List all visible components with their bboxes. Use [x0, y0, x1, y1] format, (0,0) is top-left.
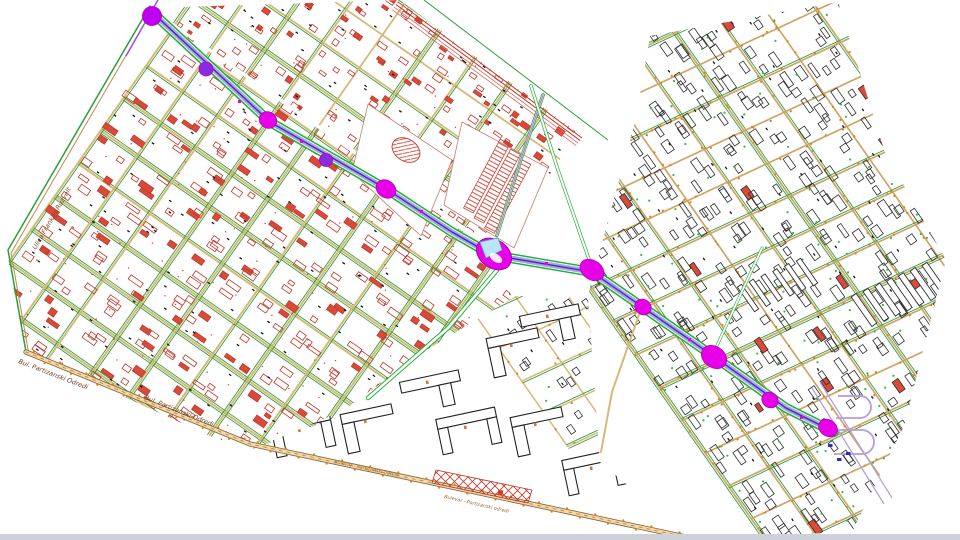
red-speck: [324, 362, 325, 363]
black-dash: [707, 420, 710, 423]
street-dot: [600, 111, 602, 113]
street-dot: [903, 206, 905, 208]
black-dash: [462, 516, 465, 519]
building: [203, 454, 212, 463]
red-speck: [308, 461, 309, 462]
building: [176, 270, 186, 279]
red-speck: [625, 432, 626, 433]
black-dash: [511, 351, 514, 354]
black-dash: [451, 407, 454, 410]
red-speck: [307, 448, 308, 449]
red-speck: [552, 194, 553, 195]
building: [544, 463, 556, 474]
black-dash: [164, 285, 167, 288]
building: [470, 326, 482, 337]
building: [538, 271, 550, 282]
street-dot: [669, 164, 671, 166]
red-speck: [263, 304, 264, 305]
building: [771, 449, 783, 460]
building: [95, 389, 103, 397]
building: [834, 307, 842, 315]
building: [483, 24, 491, 32]
red-speck: [241, 496, 242, 497]
street-dot: [621, 334, 623, 336]
red-speck: [124, 458, 125, 459]
building: [539, 444, 545, 450]
black-dash: [560, 475, 563, 478]
black-dash: [737, 445, 740, 448]
building: [376, 293, 389, 305]
building: [448, 211, 455, 218]
building: [763, 412, 777, 424]
black-dash: [10, 287, 13, 290]
street-dot: [890, 191, 892, 193]
black-dash: [479, 294, 482, 297]
black-dash: [94, 207, 97, 210]
building: [225, 108, 234, 117]
street-dot: [747, 431, 749, 433]
street-dot: [711, 387, 713, 389]
black-dash: [827, 356, 830, 359]
building: [263, 476, 272, 485]
building: [40, 397, 49, 405]
red-speck: [170, 367, 171, 368]
black-dash: [740, 268, 743, 271]
building: [942, 289, 953, 299]
building: [654, 456, 665, 466]
black-dash: [43, 326, 46, 329]
black-dash: [602, 363, 605, 366]
street-dot: [731, 416, 733, 418]
building: [600, 177, 612, 188]
black-dash: [118, 482, 121, 485]
street-dot: [689, 430, 691, 432]
black-dash: [138, 411, 141, 414]
black-dash: [42, 266, 45, 269]
red-speck: [266, 485, 267, 486]
red-speck: [378, 492, 379, 493]
street-dot: [931, 398, 933, 400]
red-speck: [307, 339, 308, 340]
black-dash: [887, 362, 890, 365]
building: [180, 221, 190, 229]
building: [471, 22, 480, 30]
building: [381, 443, 393, 454]
building: [807, 366, 814, 373]
black-dash: [472, 443, 475, 446]
black-dash: [683, 464, 686, 467]
red-speck: [175, 304, 176, 305]
building: [585, 337, 598, 348]
building: [408, 416, 419, 426]
building: [347, 192, 356, 200]
street-dot: [599, 75, 601, 77]
building: [587, 104, 593, 110]
black-dash: [185, 330, 188, 333]
red-speck: [290, 110, 291, 111]
red-speck: [490, 397, 491, 398]
building: [180, 421, 189, 429]
black-dash: [169, 200, 172, 203]
black-dash: [615, 179, 618, 182]
black-dash: [128, 337, 131, 340]
black-dash: [631, 288, 634, 291]
building: [309, 427, 316, 433]
building: [300, 187, 310, 196]
building: [464, 339, 472, 346]
building: [481, 449, 490, 458]
building: [29, 282, 39, 290]
street-dot: [767, 465, 769, 467]
building: [503, 290, 515, 300]
street-dot: [729, 51, 731, 53]
building: [257, 303, 268, 313]
red-speck: [287, 351, 288, 352]
street-dot: [662, 210, 664, 212]
building: [839, 381, 846, 388]
building: [833, 355, 848, 368]
street-dot: [637, 54, 639, 56]
street-line: [682, 216, 960, 421]
black-dash: [307, 269, 310, 272]
building: [267, 360, 275, 368]
building: [619, 278, 627, 285]
black-dash: [329, 85, 332, 88]
black-dash: [238, 353, 241, 356]
building: [219, 520, 228, 528]
building: [429, 136, 437, 143]
red-speck: [128, 267, 129, 268]
red-speck: [733, 528, 734, 529]
black-dash: [10, 313, 13, 316]
building: [740, 245, 755, 258]
building: [167, 115, 177, 125]
building: [213, 492, 220, 498]
street-dot: [475, 82, 477, 84]
building: [581, 332, 589, 339]
red-speck: [371, 221, 372, 222]
street-dot: [859, 425, 861, 427]
street-dot: [772, 419, 774, 421]
building: [186, 492, 194, 499]
red-speck: [245, 370, 246, 371]
building: [341, 479, 351, 489]
west-residential-layer: [0, 0, 935, 540]
building: [533, 213, 543, 221]
street-dot: [683, 199, 685, 201]
building: [274, 377, 289, 390]
street-dot: [953, 431, 955, 433]
red-speck: [621, 371, 622, 372]
street-dot: [471, 83, 473, 85]
street-dot: [943, 488, 945, 490]
red-speck: [531, 225, 532, 226]
red-speck: [388, 71, 389, 72]
red-speck: [532, 493, 533, 494]
building: [536, 19, 544, 26]
street-dot: [711, 404, 713, 406]
street-dot: [873, 394, 875, 396]
black-dash: [104, 414, 107, 417]
red-speck: [679, 312, 680, 313]
street-dot: [730, 187, 732, 189]
building: [412, 95, 422, 104]
building: [385, 209, 393, 216]
building: [214, 518, 221, 524]
building: [616, 133, 624, 141]
building: [400, 26, 411, 36]
building: [186, 30, 193, 37]
building: [682, 433, 688, 439]
building: [690, 315, 699, 323]
street-dot: [927, 219, 929, 221]
red-speck: [739, 431, 740, 432]
building: [288, 330, 298, 339]
building: [219, 1, 228, 10]
red-speck: [350, 473, 351, 474]
building: [176, 257, 184, 264]
building: [449, 505, 456, 512]
building: [596, 213, 606, 222]
building: [543, 276, 553, 285]
red-speck: [448, 528, 449, 529]
building: [672, 486, 681, 494]
building: [75, 286, 82, 293]
black-dash: [160, 452, 163, 455]
black-dash: [713, 252, 716, 255]
building: [472, 523, 482, 531]
building: [212, 444, 225, 455]
black-dash: [15, 359, 18, 362]
building: [52, 274, 64, 285]
building: [267, 430, 275, 437]
building: [169, 456, 175, 462]
red-speck: [676, 447, 677, 448]
red-speck: [543, 248, 544, 249]
black-dash: [367, 378, 370, 381]
black-dash: [156, 431, 159, 434]
building: [412, 77, 422, 86]
black-dash: [149, 477, 152, 480]
black-dash: [153, 79, 156, 82]
black-dash: [203, 468, 206, 471]
building: [538, 231, 550, 243]
black-dash: [418, 10, 421, 13]
black-dash: [98, 245, 101, 248]
black-dash: [637, 120, 640, 123]
building: [625, 410, 637, 421]
black-dash: [608, 418, 611, 421]
building: [71, 416, 84, 428]
black-dash: [624, 125, 627, 128]
building: [333, 67, 340, 73]
building: [647, 408, 654, 414]
black-dash: [2, 383, 5, 386]
black-dash: [282, 463, 285, 466]
street-dot: [671, 254, 673, 256]
building: [27, 399, 39, 409]
building: [313, 290, 324, 300]
red-speck: [152, 351, 153, 352]
red-speck: [761, 461, 762, 462]
red-speck: [352, 216, 353, 217]
building: [240, 475, 250, 484]
black-dash: [649, 338, 652, 341]
black-dash: [510, 482, 513, 485]
black-dash: [199, 442, 202, 445]
red-speck: [229, 464, 230, 465]
building: [274, 163, 282, 171]
building: [400, 323, 407, 331]
red-speck: [255, 454, 256, 455]
building: [387, 223, 396, 231]
street-dot: [779, 158, 781, 160]
red-speck: [170, 78, 171, 79]
black-dash: [660, 101, 663, 104]
building: [233, 446, 244, 456]
street-dot: [754, 428, 756, 430]
street-dot: [772, 95, 774, 97]
building: [512, 406, 521, 414]
red-speck: [161, 146, 162, 147]
red-speck: [522, 294, 523, 295]
building: [159, 454, 170, 464]
building: [166, 511, 173, 518]
street-dot: [741, 430, 743, 432]
red-speck: [244, 9, 245, 10]
street-dot: [814, 52, 816, 54]
building: [515, 310, 521, 316]
street-dot: [629, 192, 631, 194]
red-speck: [99, 446, 100, 447]
street-dot: [857, 207, 859, 209]
red-speck: [678, 142, 679, 143]
building: [609, 179, 619, 188]
building: [262, 252, 269, 258]
street-line: [499, 0, 938, 158]
street-line: [56, 194, 705, 540]
black-dash: [232, 57, 235, 60]
street-dot: [953, 50, 955, 52]
building: [337, 451, 347, 460]
building: [154, 416, 167, 427]
black-dash: [766, 432, 769, 435]
building: [350, 79, 363, 91]
building: [666, 387, 682, 401]
building: [585, 169, 593, 176]
red-speck: [527, 410, 528, 411]
building: [622, 362, 631, 371]
street-dot: [735, 40, 737, 42]
street-dot: [704, 72, 706, 74]
building: [318, 95, 326, 102]
street-dot: [800, 495, 802, 497]
building: [669, 486, 677, 493]
red-speck: [365, 346, 366, 347]
street-dot: [517, 106, 519, 108]
black-dash: [311, 269, 314, 272]
street-dot: [919, 380, 921, 382]
red-speck: [694, 397, 695, 398]
black-dash: [798, 346, 801, 349]
building: [231, 187, 242, 197]
street-dot: [788, 345, 790, 347]
building: [608, 124, 614, 130]
building: [584, 90, 592, 98]
black-dash: [507, 68, 510, 71]
building: [333, 515, 343, 524]
red-speck: [641, 511, 642, 512]
black-dash: [182, 106, 185, 109]
building: [290, 498, 297, 505]
building: [5, 289, 14, 297]
street-dot: [527, 46, 529, 48]
black-dash: [631, 386, 634, 389]
building: [480, 437, 492, 448]
red-speck: [318, 397, 319, 398]
black-dash: [190, 166, 193, 169]
street-dot: [586, 206, 588, 208]
building: [573, 249, 583, 258]
street-dot: [586, 116, 588, 118]
street-line: [669, 0, 960, 505]
black-dash: [456, 289, 459, 292]
building: [795, 462, 803, 470]
street-dot: [816, 235, 818, 237]
red-speck: [611, 168, 612, 169]
black-dash: [715, 410, 718, 413]
building: [561, 23, 568, 29]
black-dash: [372, 374, 375, 377]
black-dash: [410, 26, 413, 29]
black-dash: [389, 15, 392, 18]
building: [33, 409, 46, 421]
black-dash: [195, 527, 198, 530]
black-dash: [181, 520, 184, 523]
black-dash: [204, 500, 207, 503]
building: [179, 362, 190, 371]
building: [727, 444, 737, 453]
red-speck: [442, 253, 443, 254]
building: [536, 447, 544, 454]
black-dash: [70, 336, 73, 339]
black-dash: [697, 220, 700, 223]
black-dash: [730, 457, 733, 460]
building: [131, 323, 141, 331]
black-dash: [560, 94, 563, 97]
building: [115, 267, 123, 275]
black-dash: [538, 220, 541, 223]
red-speck: [183, 399, 184, 400]
black-dash: [268, 66, 271, 69]
building: [632, 365, 646, 377]
building: [519, 235, 528, 243]
street-dot: [680, 343, 682, 345]
red-speck: [276, 507, 277, 508]
red-speck: [250, 26, 251, 27]
red-speck: [195, 472, 196, 473]
black-dash: [558, 148, 561, 151]
red-speck: [260, 415, 261, 416]
red-speck: [650, 213, 651, 214]
red-speck: [436, 463, 437, 464]
building: [404, 113, 411, 120]
black-dash: [707, 248, 710, 251]
black-dash: [242, 450, 245, 453]
red-speck: [563, 229, 564, 230]
black-dash: [40, 425, 43, 428]
red-speck: [11, 319, 12, 320]
